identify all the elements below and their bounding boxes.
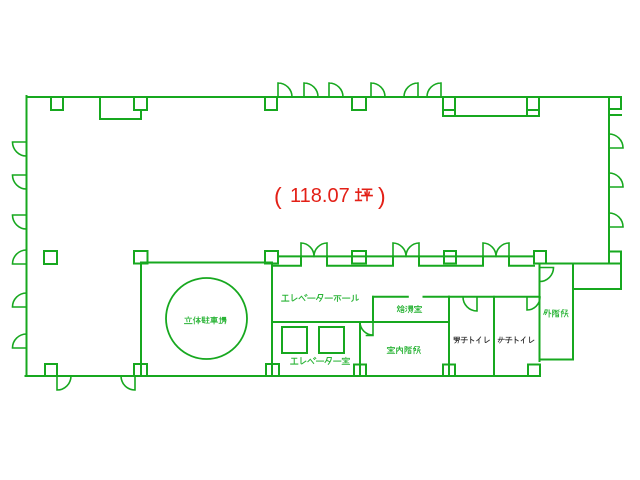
svg-text:(: ( [274, 183, 282, 209]
svg-text:): ) [378, 183, 386, 209]
svg-text:118.07: 118.07 [290, 185, 350, 207]
